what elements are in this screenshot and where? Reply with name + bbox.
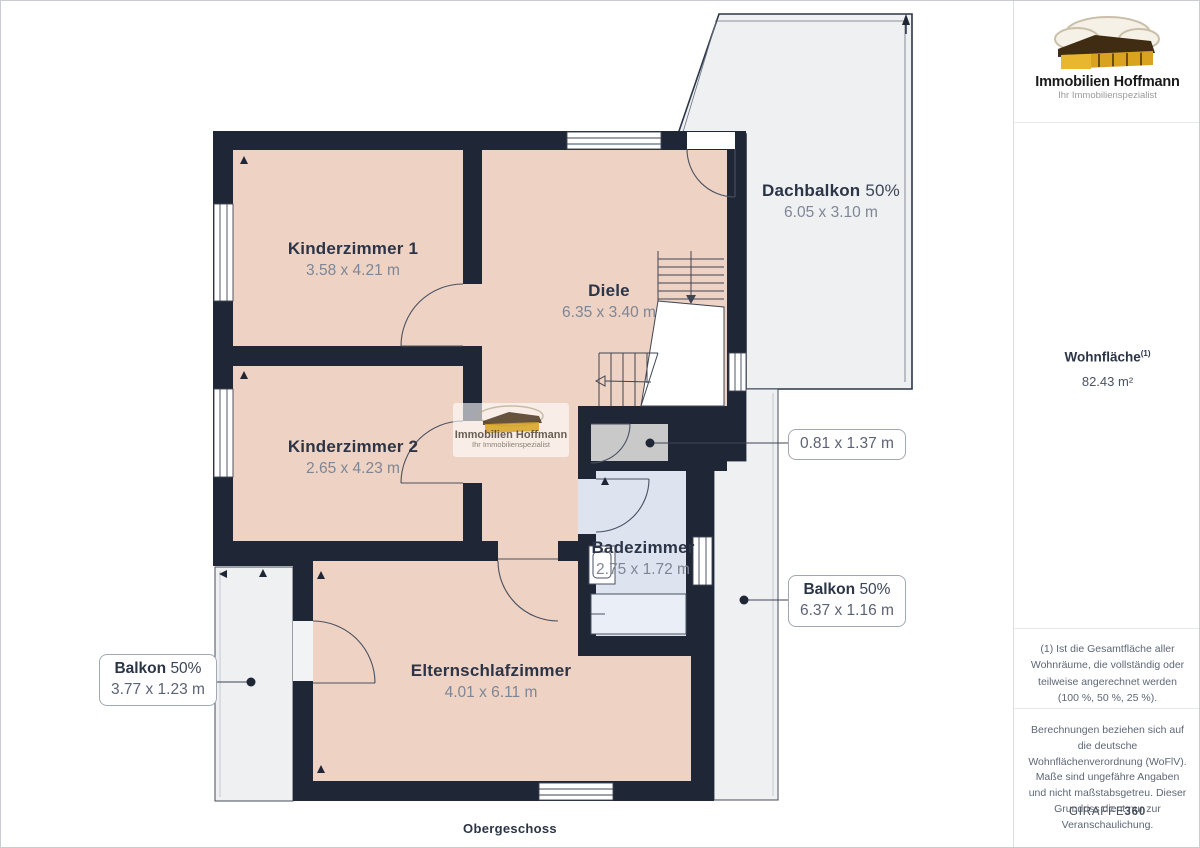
room-label-elternschlafzimmer: Elternschlafzimmer 4.01 x 6.11 m — [411, 661, 571, 702]
room-dims: 2.75 x 1.72 m — [591, 561, 694, 579]
floor-title: Obergeschoss — [463, 821, 557, 836]
leader-dot — [247, 678, 256, 687]
company-logo: Immobilien Hoffmann Ihr Immobilienspezia… — [1014, 1, 1200, 123]
room-name: Kinderzimmer 2 — [288, 437, 418, 457]
window-bedroom-bottom — [539, 783, 613, 800]
callout-dims: 0.81 x 1.37 m — [800, 434, 894, 455]
callout-balkon-right: Balkon 50% 6.37 x 1.16 m — [788, 575, 906, 627]
room-label-kinderzimmer-2: Kinderzimmer 2 2.65 x 4.23 m — [288, 437, 418, 478]
window-kinderzimmer1 — [214, 204, 233, 301]
room-dims: 6.35 x 3.40 m — [562, 304, 656, 322]
leader-dot — [740, 596, 749, 605]
floor-plan-drawing — [1, 1, 1013, 848]
callout-share: 50% — [170, 660, 201, 677]
company-logo-icon — [1033, 7, 1183, 73]
callout-balkon-left: Balkon 50% 3.77 x 1.23 m — [99, 654, 217, 706]
bathtub — [591, 594, 686, 634]
sidebar-divider — [1014, 628, 1200, 629]
leader-dot — [646, 439, 655, 448]
area-value: 82.43 m² — [1014, 374, 1200, 389]
room-dims: 4.01 x 6.11 m — [411, 684, 571, 702]
window-bad-right — [693, 537, 712, 585]
window-diele-top — [567, 132, 661, 149]
living-area-summary: Wohnfläche(1) 82.43 m² — [1014, 349, 1200, 389]
room-name: Badezimmer — [591, 538, 694, 558]
callout-niche: 0.81 x 1.37 m — [788, 429, 906, 460]
room-dims: 3.58 x 4.21 m — [288, 262, 418, 280]
callout-share: 50% — [859, 581, 890, 598]
callout-name: Balkon — [114, 660, 166, 677]
room-name: Diele — [562, 281, 656, 301]
room-share: 50% — [865, 181, 900, 200]
room-label-kinderzimmer-1: Kinderzimmer 1 3.58 x 4.21 m — [288, 239, 418, 280]
room-name: Kinderzimmer 1 — [288, 239, 418, 259]
callout-name: Balkon — [803, 581, 855, 598]
sidebar-divider — [1014, 708, 1200, 709]
room-dims: 6.05 x 3.10 m — [762, 204, 900, 222]
brand-light: GIRAFFE — [1069, 806, 1124, 818]
callout-dims: 3.77 x 1.23 m — [111, 680, 205, 701]
giraffe360-brand: GIRAFFE360 — [1014, 806, 1200, 818]
room-label-dachbalkon: Dachbalkon 50% 6.05 x 3.10 m — [762, 181, 900, 222]
watermark-logo — [453, 403, 569, 457]
room-name: Elternschlafzimmer — [411, 661, 571, 681]
window-diele-right — [729, 353, 746, 391]
room-label-badezimmer: Badezimmer 2.75 x 1.72 m — [591, 538, 694, 579]
floorplan-page: Immobilien Hoffmann Ihr Immobilienspezia… — [0, 0, 1200, 848]
brand-bold: 360 — [1124, 806, 1146, 818]
floor-plan: Immobilien Hoffmann Ihr Immobilienspezia… — [1, 1, 1013, 848]
room-dims: 2.65 x 4.23 m — [288, 460, 418, 478]
window-kinderzimmer2 — [214, 389, 233, 477]
area-title: Wohnfläche — [1064, 350, 1140, 365]
area-footnote-marker: (1) — [1141, 349, 1151, 358]
info-sidebar: Immobilien Hoffmann Ihr Immobilienspezia… — [1013, 1, 1200, 848]
room-label-diele: Diele 6.35 x 3.40 m — [562, 281, 656, 322]
footnote-text: (1) Ist die Gesamtfläche aller Wohnräume… — [1027, 641, 1188, 706]
callout-dims: 6.37 x 1.16 m — [800, 601, 894, 622]
company-name: Immobilien Hoffmann — [1014, 74, 1200, 90]
room-name: Dachbalkon — [762, 181, 860, 200]
company-tagline: Ihr Immobilienspezialist — [1014, 90, 1200, 101]
